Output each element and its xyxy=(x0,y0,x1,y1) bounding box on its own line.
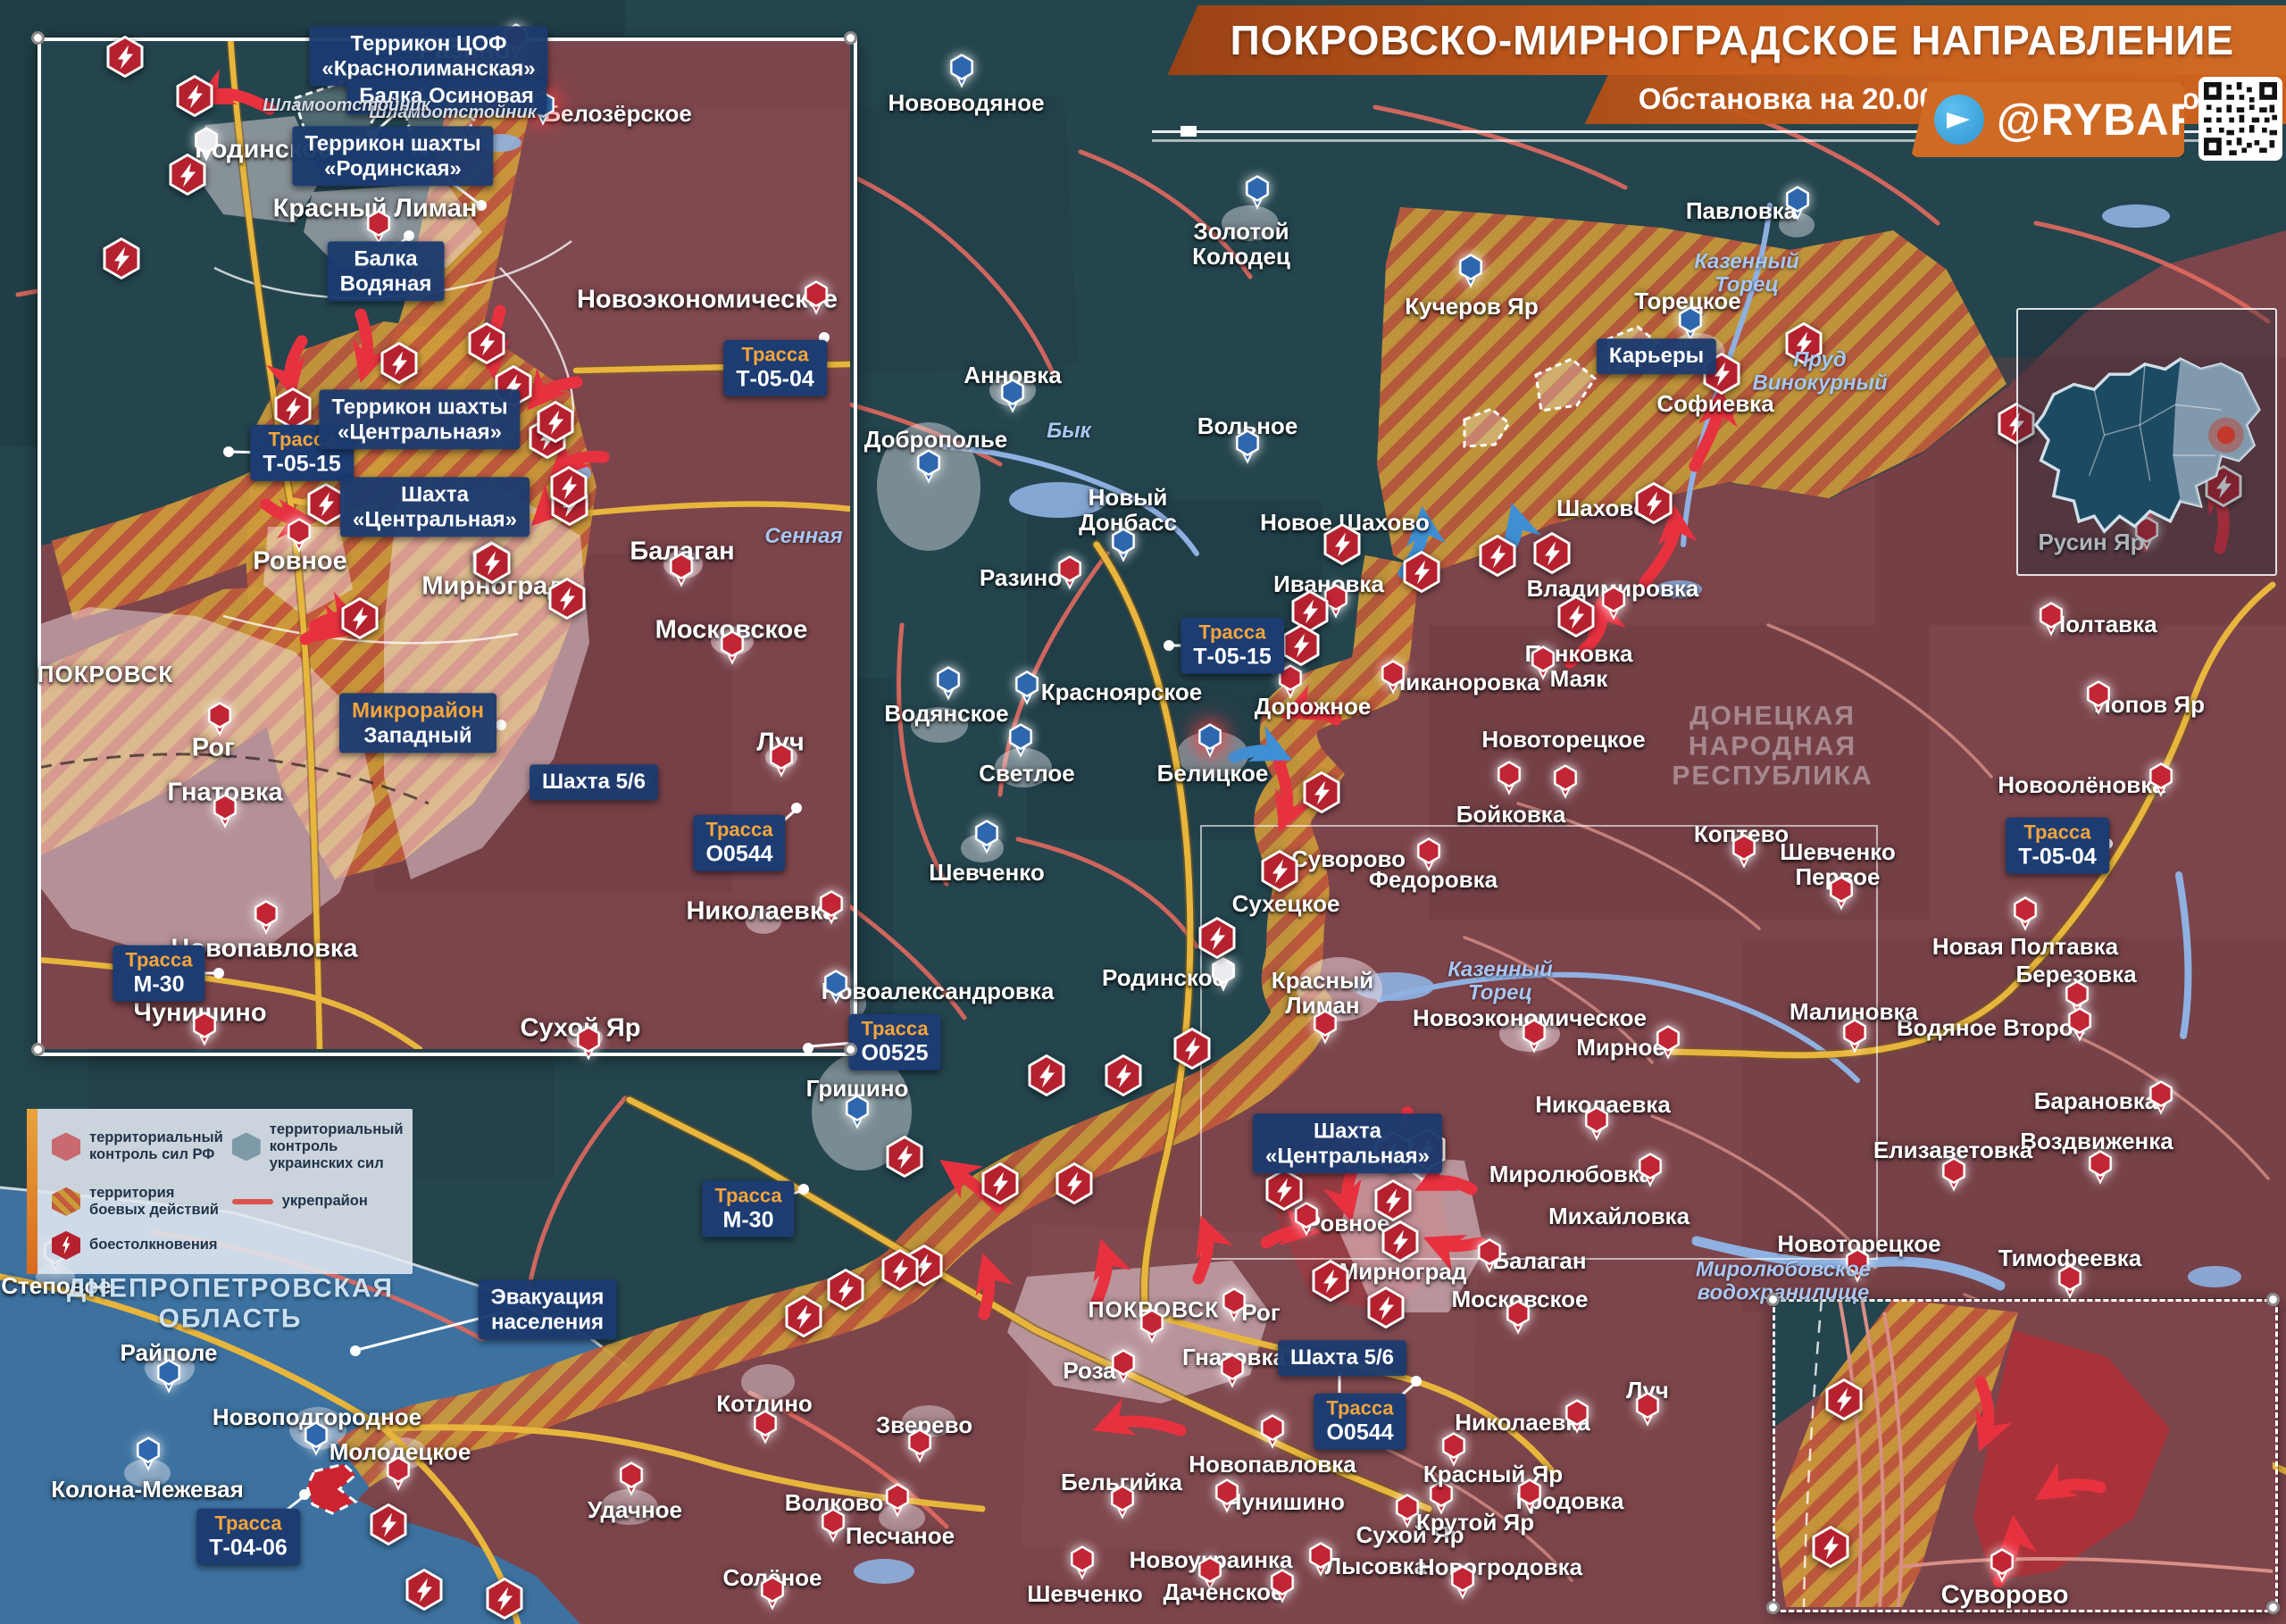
legend-item-fortified: укрепрайон xyxy=(232,1185,404,1219)
clash-icon[interactable] xyxy=(1322,522,1363,571)
clash-icon[interactable] xyxy=(1380,1220,1421,1269)
town-pin-blue[interactable] xyxy=(154,1358,184,1398)
town-pin-red[interactable] xyxy=(1599,585,1629,625)
town-label: Новопавловка xyxy=(1189,1453,1356,1478)
town-pin-red[interactable] xyxy=(1840,1018,1870,1058)
town-pin-red[interactable] xyxy=(2147,762,2176,802)
town-pin-red[interactable] xyxy=(1138,1308,1167,1348)
rybar-badge[interactable]: @RYBAR xyxy=(1911,82,2184,157)
clash-icon[interactable] xyxy=(1531,531,1573,580)
inset-corner-dot xyxy=(1766,1293,1780,1306)
town-pin-blue[interactable] xyxy=(934,665,964,705)
town-label: Новая Полтавка xyxy=(1932,935,2118,960)
town-pin-blue[interactable] xyxy=(998,378,1028,418)
town-pin-red[interactable] xyxy=(2086,1149,2115,1189)
clash-icon[interactable] xyxy=(471,541,513,590)
info-label: Карьеры xyxy=(1597,338,1716,374)
town-label: Нововодяное xyxy=(888,91,1044,116)
info-label: Эвакуациянаселения xyxy=(479,1279,617,1339)
town-pin-red[interactable] xyxy=(2084,679,2114,720)
town-pin-blue[interactable] xyxy=(972,819,1002,859)
town-label: Удачное xyxy=(588,1498,682,1523)
info-label: Террикон шахты«Центральная» xyxy=(319,389,520,449)
town-pin-red[interactable] xyxy=(819,1507,848,1547)
telegram-icon xyxy=(1934,95,1984,145)
inset-corner-dot xyxy=(844,1043,857,1056)
town-pin-red[interactable] xyxy=(718,629,747,670)
town-pin-blue[interactable] xyxy=(1196,722,1225,762)
clash-icon[interactable] xyxy=(368,1503,409,1552)
inset-corner-dot xyxy=(31,31,45,45)
rybar-handle: @RYBAR xyxy=(1997,94,2203,146)
town-pin-red[interactable] xyxy=(205,701,235,741)
town-pin-red[interactable] xyxy=(1218,1353,1247,1393)
town-label: Белицкое xyxy=(1157,762,1269,787)
town-pin-red[interactable] xyxy=(817,889,847,929)
river-label: Шламоотстойник xyxy=(263,96,430,115)
town-pin-red[interactable] xyxy=(2011,895,2040,936)
town-pin-red[interactable] xyxy=(2056,1263,2085,1303)
clash-icon[interactable] xyxy=(546,577,588,626)
clash-icon[interactable] xyxy=(1556,595,1597,644)
town-pin-blue[interactable] xyxy=(843,1094,872,1134)
inset-corner-dot xyxy=(844,31,857,45)
clash-icon[interactable] xyxy=(1264,1168,1305,1217)
town-pin-red[interactable] xyxy=(574,1025,604,1065)
road-label: ТрассаТ-05-15 xyxy=(1181,618,1284,674)
town-pin-red[interactable] xyxy=(211,793,240,833)
clash-icon[interactable] xyxy=(548,465,589,514)
town-pin-red[interactable] xyxy=(1515,1478,1545,1518)
town-label: Шевченко xyxy=(929,861,1044,886)
clash-icon[interactable] xyxy=(1026,1054,1067,1103)
town-label: Миролюбовка xyxy=(1489,1162,1653,1187)
river-label: Миролюбовскоеводохранилище xyxy=(1696,1259,1871,1306)
river-label: Сенная xyxy=(764,525,842,548)
town-label: Барановка xyxy=(2034,1089,2158,1114)
town-label: Кучеров Яр xyxy=(1405,295,1538,320)
town-pin-red[interactable] xyxy=(1988,1547,2017,1587)
town-label: Красноярское xyxy=(1041,680,1202,705)
town-label: Мирное xyxy=(1576,1036,1665,1061)
legend-item-clashes: боестолкновения xyxy=(52,1231,223,1260)
qr-code xyxy=(2198,77,2282,161)
town-pin-red[interactable] xyxy=(2147,1079,2176,1120)
region-label: ДОНЕЦКАЯНАРОДНАЯРЕСПУБЛИКА xyxy=(1672,702,1873,792)
town-label: Николаевка xyxy=(686,897,837,925)
town-pin-red[interactable] xyxy=(1563,1398,1592,1438)
town-pin-blue[interactable] xyxy=(947,53,977,93)
clash-icon[interactable] xyxy=(1633,481,1674,530)
town-label: Дорожное xyxy=(1255,695,1372,720)
town-pin-blue[interactable] xyxy=(1783,185,1813,225)
clash-icon[interactable] xyxy=(104,35,146,84)
town-pin-red[interactable] xyxy=(1582,1105,1612,1145)
town-pin-blue[interactable] xyxy=(1456,253,1486,293)
river-label: КазенныйТорец xyxy=(1448,959,1553,1006)
town-label: Федоровка xyxy=(1369,868,1498,893)
clash-icon[interactable] xyxy=(1281,623,1322,672)
ukraine-minimap xyxy=(2016,308,2277,576)
town-pin-red[interactable] xyxy=(2065,1006,2095,1046)
town-pin-red[interactable] xyxy=(384,1455,413,1495)
clash-icon[interactable] xyxy=(1401,550,1442,599)
town-pin-blue[interactable] xyxy=(914,448,944,488)
river-label: КазенныйТорец xyxy=(1694,251,1799,298)
clash-icon[interactable] xyxy=(783,1295,824,1344)
clash-icon[interactable] xyxy=(1259,849,1300,898)
inset-corner-dot xyxy=(2266,1293,2280,1306)
town-pin-red[interactable] xyxy=(617,1461,647,1501)
town-label: Лысовка xyxy=(1325,1554,1427,1579)
clash-icon[interactable] xyxy=(174,74,215,123)
map-labels: Разино Белозёрское Нововодяное ЗолотойКо… xyxy=(0,0,2286,1624)
town-pin-red[interactable] xyxy=(1495,760,1524,800)
clash-icon[interactable] xyxy=(1103,1054,1144,1103)
town-pin-red[interactable] xyxy=(1439,1431,1469,1471)
clash-icon[interactable] xyxy=(535,400,576,449)
town-pin-red[interactable] xyxy=(1311,1009,1340,1049)
legend-item-ua-control: территориальный контроль украинских сил xyxy=(232,1121,404,1172)
clash-icon[interactable] xyxy=(339,596,380,645)
town-pin-red[interactable] xyxy=(667,552,697,592)
clash-icon[interactable] xyxy=(1365,1286,1406,1335)
clash-icon[interactable] xyxy=(1810,1525,1851,1574)
town-pin-red[interactable] xyxy=(1730,833,1759,873)
road-label: ТрассаО0544 xyxy=(1314,1394,1406,1450)
road-label: ТрассаТ-05-04 xyxy=(723,340,827,396)
clash-icon[interactable] xyxy=(880,1248,921,1297)
town-label: Балаган xyxy=(1492,1249,1586,1274)
town-pin-blue[interactable] xyxy=(302,1420,331,1461)
clashes-swatch xyxy=(52,1231,80,1260)
clash-icon[interactable] xyxy=(484,1577,525,1624)
info-label: Шахта 5/6 xyxy=(530,764,658,800)
inset-corner-dot xyxy=(1766,1601,1780,1614)
town-pin-red[interactable] xyxy=(1475,1237,1505,1278)
clash-icon[interactable] xyxy=(825,1268,866,1317)
town-label: Новоолёновка xyxy=(1998,773,2165,798)
road-label: ТрассаТ-04-06 xyxy=(196,1509,300,1565)
town-pin-red[interactable] xyxy=(1109,1348,1139,1388)
town-pin-red[interactable] xyxy=(190,1011,220,1051)
town-label: ЗолотойКолодец xyxy=(1192,220,1290,270)
clash-icon[interactable] xyxy=(1172,1027,1213,1076)
road-label: ТрассаО0525 xyxy=(848,1014,940,1070)
town-pin-red[interactable] xyxy=(1379,659,1408,699)
clash-icon[interactable] xyxy=(167,153,208,202)
town-pin-red[interactable] xyxy=(1213,1478,1242,1518)
town-label: Бойковка xyxy=(1456,803,1566,828)
town-pin-red[interactable] xyxy=(1633,1391,1663,1431)
river-label: Бык xyxy=(1047,420,1091,443)
road-label: ТрассаТ-05-04 xyxy=(2006,818,2109,874)
clash-icon[interactable] xyxy=(466,321,507,371)
clash-icon[interactable] xyxy=(1301,770,1342,820)
town-pin-red[interactable] xyxy=(1504,1299,1533,1339)
town-label: Песчаное xyxy=(846,1524,955,1549)
clash-icon[interactable] xyxy=(1054,1162,1095,1211)
town-label: Михайловка xyxy=(1548,1204,1689,1229)
town-pin-red[interactable] xyxy=(767,742,797,782)
inset-corner-dot xyxy=(31,1043,45,1056)
clash-icon[interactable] xyxy=(379,341,420,390)
town-label: Родинское xyxy=(1102,966,1225,991)
town-label: Новогродовка xyxy=(1418,1555,1582,1580)
town-pin-red[interactable] xyxy=(1551,763,1581,804)
town-pin-red[interactable] xyxy=(905,1428,935,1468)
info-label: Террикон ЦОФ«Краснолиманская» xyxy=(309,26,547,86)
map-legend: территориальный контроль сил РФ территор… xyxy=(27,1109,413,1274)
legend-item-combat-zone: территория боевых действий xyxy=(52,1185,223,1219)
town-pin-red[interactable] xyxy=(1220,1287,1249,1327)
map-canvas: Разино Белозёрское Нововодяное ЗолотойКо… xyxy=(0,0,2286,1624)
combat-zone-swatch xyxy=(52,1187,80,1216)
title-underline-marker xyxy=(1181,126,1197,137)
legend-item-rf-control: территориальный контроль сил РФ xyxy=(52,1121,223,1172)
town-label: Белозёрское xyxy=(544,102,692,127)
town-label: Павловка xyxy=(1686,199,1797,224)
clash-icon[interactable] xyxy=(1310,1259,1351,1308)
rf-control-swatch xyxy=(52,1132,80,1161)
clash-icon[interactable] xyxy=(1823,1378,1865,1427)
town-pin-red[interactable] xyxy=(1258,1413,1288,1453)
town-label: Чунишино xyxy=(1225,1490,1345,1515)
town-pin-red[interactable] xyxy=(751,1409,780,1449)
town-pin-red[interactable] xyxy=(1520,1018,1549,1058)
clash-icon[interactable] xyxy=(404,1568,445,1617)
town-pin-blue[interactable] xyxy=(1243,174,1272,214)
town-pin-red[interactable] xyxy=(1940,1156,1969,1196)
town-label: ПОКРОВСК xyxy=(38,662,173,687)
region-label: ДНЕПРОПЕТРОВСКАЯОБЛАСТЬ xyxy=(67,1273,394,1333)
town-label: Колона-Межевая xyxy=(51,1478,244,1503)
inset-corner-dot xyxy=(2266,1601,2280,1614)
town-pin-red[interactable] xyxy=(802,279,831,320)
info-label: Шахта«Центральная» xyxy=(340,477,530,537)
town-label: Разино xyxy=(980,566,1062,591)
page-title: ПОКРОВСКО-МИРНОГРАДСКОЕ НАПРАВЛЕНИЕ xyxy=(1168,5,2286,75)
ua-control-swatch xyxy=(232,1132,261,1161)
info-label: БалкаВодяная xyxy=(328,241,445,301)
town-label: Новоалександровка xyxy=(822,979,1055,1004)
town-pin-red[interactable] xyxy=(1306,1541,1336,1581)
town-pin-blue[interactable] xyxy=(134,1436,163,1476)
town-pin-red[interactable] xyxy=(2037,601,2066,641)
town-label: Новоторецкое xyxy=(1481,728,1645,753)
town-label: Светлое xyxy=(979,762,1074,787)
town-pin-red[interactable] xyxy=(1654,1024,1683,1064)
town-pin-blue[interactable] xyxy=(1006,722,1036,762)
info-label: Шахта 5/6 xyxy=(1278,1340,1406,1376)
town-pin-red[interactable] xyxy=(252,899,281,939)
town-pin-red[interactable] xyxy=(1448,1564,1478,1604)
clash-icon[interactable] xyxy=(884,1135,925,1184)
road-label: ТрассаМ-30 xyxy=(113,945,204,1002)
road-label: ТрассаМ-30 xyxy=(702,1181,794,1237)
town-pin-blue[interactable] xyxy=(1013,670,1042,710)
river-label: ПрудВинокурный xyxy=(1752,349,1887,396)
town-pin-red[interactable] xyxy=(1055,554,1085,595)
town-label: Шевченко xyxy=(1027,1582,1142,1607)
town-label: Никаноровка xyxy=(1389,670,1539,695)
town-pin-blue[interactable] xyxy=(1109,527,1139,567)
town-pin-red[interactable] xyxy=(883,1482,913,1522)
town-pin-red[interactable] xyxy=(758,1575,788,1615)
town-pin-red[interactable] xyxy=(1268,1568,1297,1608)
town-pin-red[interactable] xyxy=(1636,1152,1665,1192)
town-label: Водянское xyxy=(884,702,1008,727)
info-label: МикрорайонЗападный xyxy=(339,693,496,753)
town-label: Новоэкономическое xyxy=(577,286,838,313)
town-pin-blue[interactable] xyxy=(1233,429,1263,469)
info-label: Шахта«Центральная» xyxy=(1253,1113,1442,1173)
info-label: Террикон шахты«Родинская» xyxy=(292,126,493,186)
clash-icon[interactable] xyxy=(1477,534,1518,583)
road-label: ТрассаО0544 xyxy=(693,815,785,871)
fortified-line-swatch xyxy=(232,1199,273,1204)
town-pin-red[interactable] xyxy=(1068,1545,1097,1585)
town-label: Водяное Второе xyxy=(1897,1016,2086,1041)
town-pin-red[interactable] xyxy=(1108,1484,1138,1524)
clash-icon[interactable] xyxy=(980,1162,1021,1211)
clash-icon[interactable] xyxy=(1197,916,1238,965)
town-pin-blue[interactable] xyxy=(822,969,851,1009)
town-label: Даченское xyxy=(1163,1580,1283,1605)
clash-icon[interactable] xyxy=(101,237,142,286)
town-pin-red[interactable] xyxy=(1827,875,1856,915)
